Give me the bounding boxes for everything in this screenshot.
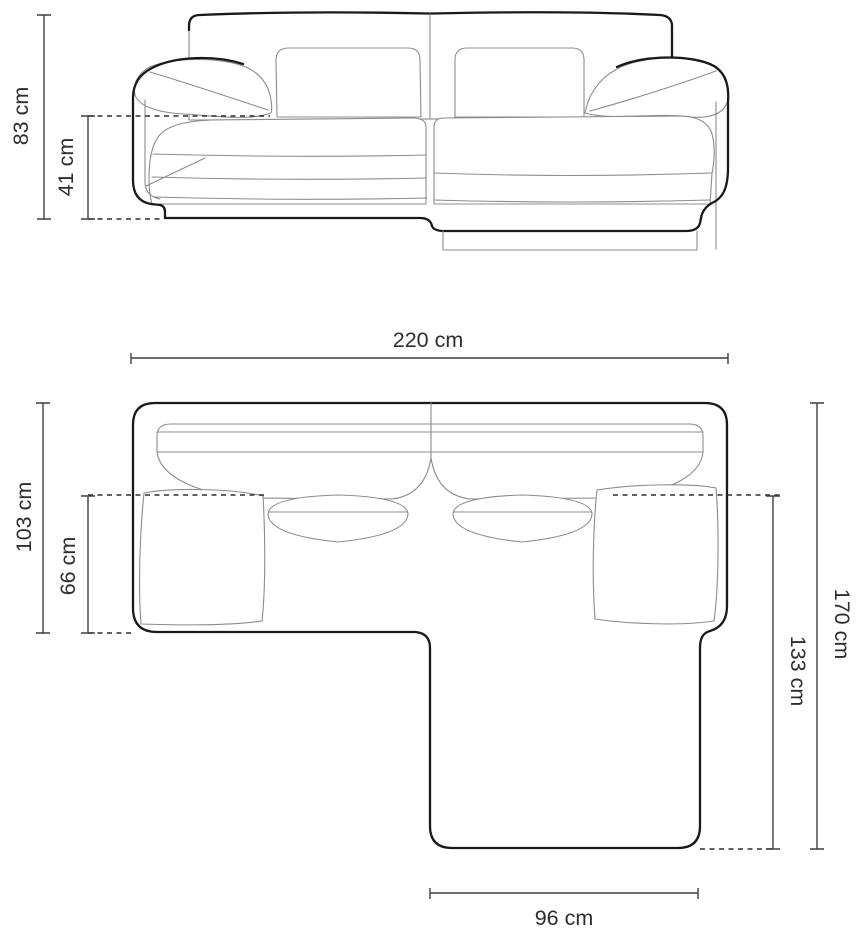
front-seat-right <box>434 116 714 204</box>
diagram-canvas: 83 cm 41 cm 220 cm 103 cm 66 cm 170 cm <box>0 0 860 940</box>
front-chaise-plinth <box>443 231 697 250</box>
front-back-cushion-left <box>276 48 421 117</box>
dim-line-seat-depth <box>81 496 95 633</box>
sofa-dimension-diagram: 83 cm 41 cm 220 cm 103 cm 66 cm 170 cm <box>0 0 860 940</box>
dim-line-total-depth <box>810 403 824 849</box>
dim-line-body-depth <box>36 403 50 633</box>
dim-line-total-height <box>37 15 51 219</box>
front-dimensions: 83 cm 41 cm <box>9 15 95 219</box>
dim-label-total-depth: 170 cm <box>830 589 854 660</box>
dim-label-chaise-depth: 133 cm <box>786 636 810 707</box>
sofa-top-view <box>133 403 727 848</box>
front-base-outline <box>165 218 701 231</box>
dim-line-chaise-width <box>430 888 698 899</box>
front-back-cushion-right <box>455 48 584 117</box>
plan-arm-pillow-right <box>593 485 718 624</box>
dim-label-chaise-width: 96 cm <box>535 906 594 930</box>
dim-line-chaise-depth <box>766 496 780 849</box>
dim-line-seat-height <box>81 116 95 219</box>
front-seat-left <box>149 118 426 204</box>
dim-label-seat-depth: 66 cm <box>56 537 80 596</box>
dim-label-seat-height: 41 cm <box>54 138 78 197</box>
dim-label-total-height: 83 cm <box>9 87 33 146</box>
dim-label-body-depth: 103 cm <box>12 482 36 553</box>
sofa-front-view <box>133 12 728 250</box>
plan-arm-pillow-left <box>140 489 265 624</box>
dim-label-total-width: 220 cm <box>393 328 464 352</box>
dim-line-total-width <box>131 353 728 364</box>
